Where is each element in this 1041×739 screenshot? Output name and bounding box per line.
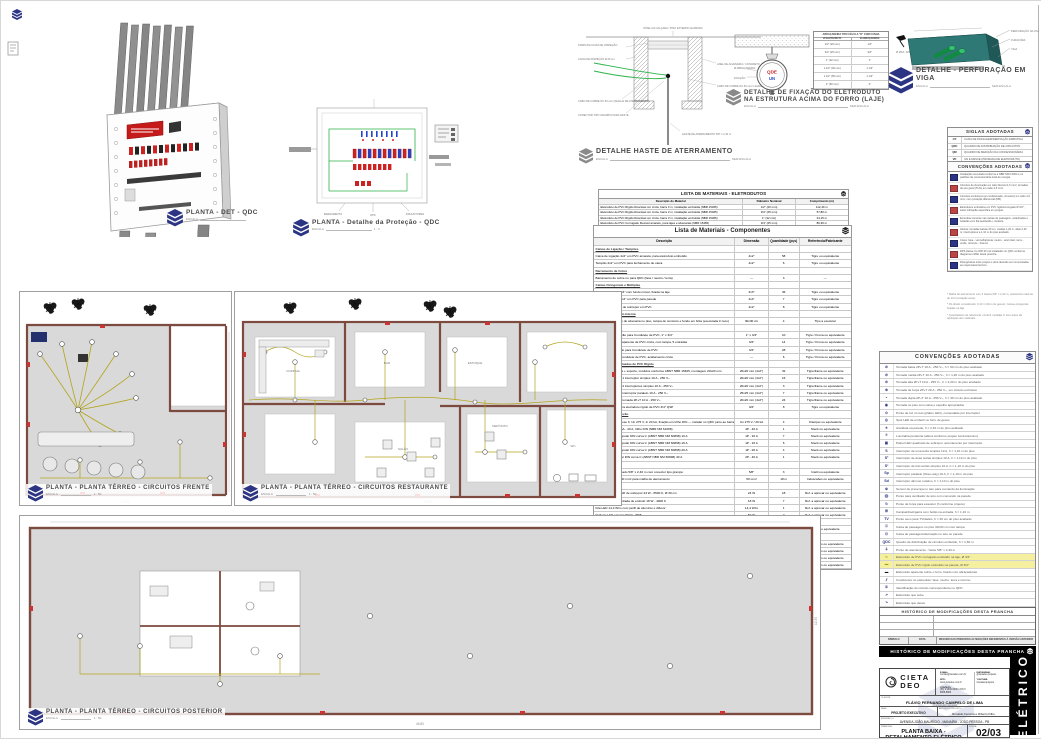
plan-dimension: 46.80 (416, 722, 424, 726)
sheet-corner-mark-icon (7, 41, 19, 57)
scale-label: ESCALA (46, 716, 58, 720)
nota-row: Alturas: tomadas baixas 30 cm, médias 1,… (948, 227, 1032, 238)
fixation-row: 1 1/2" (50 mm) 1 1/2" (814, 73, 888, 81)
field-label: CLIENTE: (881, 697, 891, 699)
contact-value: @cietadeo.projetos (977, 674, 997, 676)
nota-row: Cores: fase - vermelha/preta; neutro - a… (948, 238, 1032, 249)
protecao-annotation: DPS (370, 213, 376, 217)
legend-row: ⊛Sensor de presença no teto para comando… (880, 486, 1035, 494)
sigla-row: CPCAIXA DE PASSAGEM/DERIVAÇÃO EMBUTIDA (948, 137, 1032, 144)
list-row: Barramento de Cobre (594, 268, 851, 275)
legend-row: ↘Eletroduto que desce (880, 599, 1035, 607)
nota-symbol-icon (950, 262, 958, 269)
viga-label: Ø MÁX. D/3 (896, 50, 910, 54)
nota-row: Circuitos exclusivos (ar-condicionado, c… (948, 194, 1032, 205)
sigla-row: QMQUADRO DE MEDIÇÃO DA CONCESSIONÁRIA (948, 150, 1032, 157)
legend-symbol-icon: ▬ (880, 569, 894, 576)
list-row: Interruptores e Tomadas de PVC Rígido (594, 361, 851, 368)
list-header: DescriçãoDimensãoQuantidade (pçs)Referên… (594, 238, 851, 246)
legend-row: ◒Tomada dupla 2P+T 10 A - 250 V~, h = 30… (880, 394, 1035, 402)
list-row: Conjunto 4x2" com 2 interruptores simple… (594, 383, 851, 390)
plan-frente-caption: PLANTA - PLANTA TÉRREO - CIRCUITOS FRENT… (26, 484, 212, 504)
notas-title: CONVENÇÕES ADOTADAS (948, 162, 1032, 172)
list-row: Luminária LED quadrada de embutir 18 W -… (594, 498, 851, 505)
list-row: Caixas de Ligação / Tampões (594, 246, 851, 253)
list-row: Adaptador flangeado para Condulete de PV… (594, 347, 851, 354)
fase-cell: FASE: PROJETO EXECUTIVO (880, 707, 938, 716)
plan-restaurante-panel: COZINHA BAR ESTOQUE SALÃO WC DEPÓSITO 27… (234, 291, 622, 506)
room-label: SALÃO (398, 446, 409, 451)
fase-value: PROJETO EXECUTIVO (880, 711, 937, 715)
siglas-table: SIGLAS ADOTADAS CPCAIXA DE PASSAGEM/DERI… (947, 127, 1033, 164)
endereco-cell: ENDEREÇO: AVENIDA JOÃO MAURÍCIO - MANAÍR… (880, 717, 1009, 724)
sheet-corner-logo-icon (12, 9, 22, 21)
legend-row: ⍉Ponto de força para exaustor (h conform… (880, 501, 1035, 509)
sheet-number: 02/03 (968, 728, 1009, 738)
qdc-3d-drawing (69, 19, 284, 237)
legend-row: ⊘Tomada baixa 2P+T 10 A - 250 V~, h = 30… (880, 364, 1035, 372)
nota-row: Instalação executada conforme a NBR 5410… (948, 172, 1032, 183)
room-label: DEPÓSITO (492, 423, 508, 428)
legend-symbol-icon: TV (880, 516, 894, 523)
legend-symbol-icon: ▬ (880, 561, 894, 568)
fixation-col: Ø ABRAÇADEIRA (852, 38, 889, 40)
nota-row: Circuitos de iluminação em cabo flexível… (948, 183, 1032, 194)
field-label: ENDEREÇO: (881, 718, 894, 720)
client-cell: CLIENTE: FLÁVIO FERNANDO CAMPELO DE LIMA… (880, 696, 1009, 706)
list-row: Condulete múltiplo aparente de PVC cinza… (594, 339, 851, 346)
convencoes-notas: CONVENÇÕES ADOTADAS Instalação executada… (947, 161, 1033, 272)
list-row: Aterramento (594, 462, 851, 469)
list-title: Lista de Materiais - Componentes (594, 226, 851, 238)
nota-symbol-icon (950, 229, 958, 236)
legend-symbol-icon: S (880, 448, 894, 455)
cube-logo-icon (579, 148, 593, 165)
titleblock-bar-title: HISTÓRICO DE MODIFICAÇÕES DESTA PRANCHA (890, 649, 1024, 654)
detail-title: PLANTA - Detalhe da Proteção - QDC (312, 219, 440, 226)
detail-title: DETALHE - PERFURAÇÃO EM VIGA (916, 67, 1039, 83)
prancha-cell: PRANCHA: PLANTA BAIXA - DETALHAMENTO ELÉ… (880, 725, 968, 737)
legend-symbol-icon: Sp (880, 470, 894, 477)
list-row: Caixa de Ligação 4x4" em PVC para parede… (594, 296, 851, 303)
contact-value: www.cietadeo.com.br (940, 682, 962, 684)
contact-value: /cietadeoprojetos (977, 682, 995, 684)
list-row: Iluminação (594, 483, 851, 490)
list-logo-icon (842, 227, 849, 235)
detail-title: PLANTA - DET - QDC (186, 209, 258, 216)
scale-value: 1 : 3 (374, 227, 380, 231)
legend-title: CONVENÇÕES ADOTADAS (880, 352, 1035, 364)
protecao-annotation: DISJUNTORES (406, 212, 425, 216)
historico-empty-row (880, 623, 1035, 630)
cube-logo-icon (167, 209, 183, 228)
material-list-eletrodutos: LISTA DE MATERIAIS - ELETRODUTOS Descriç… (598, 189, 849, 228)
plan-title: PLANTA - PLANTA TÉRREO - CIRCUITOS FRENT… (46, 485, 210, 491)
legend-symbol-icon: ⨂ (880, 493, 894, 500)
legend-row: ⌼Caixa de passagem/derivação no teto ou … (880, 531, 1035, 539)
scale-value: 1 : 50 (94, 492, 102, 496)
drawing-sheet: PLANTA - DET - QDC ESCALA BARRAMENTO DPS… (0, 0, 1041, 739)
legend-symbol-icon: ⌾ (880, 432, 894, 439)
list-row: Mini disjuntor monopolar DIN curva C (AB… (594, 440, 851, 447)
legend-symbol-icon: S³ (880, 463, 894, 470)
haste-label: CABO DE COBRE NU 50 mm² (MALHA DE ATERRA… (578, 99, 650, 103)
client-sub: PROPRIETÁRIO DA OBRA (880, 705, 1009, 707)
legend-row: S³Interruptor de três teclas simples 10 … (880, 463, 1035, 471)
field-label: FASE: (881, 708, 887, 710)
historico-empty-row (880, 630, 1035, 637)
fixation-row: 1" (32 mm) 1" (814, 57, 888, 65)
list-row: Mini disjuntor monopolar DIN curva C (AB… (594, 433, 851, 440)
nota-symbol-icon (950, 207, 958, 214)
cube-logo-icon (293, 219, 309, 238)
scale-label: ESCALA (744, 104, 756, 108)
sigla-row: QDCQUADRO DE DISTRIBUIÇÃO DE CIRCUITOS (948, 144, 1032, 151)
legend-symbol-icon: ✶ (880, 425, 894, 432)
legend-symbol-icon: ◉ (880, 402, 894, 409)
legend-symbol-icon: ↗ (880, 592, 894, 599)
legend-symbol-icon: ⊘ (880, 372, 894, 379)
scale-label: ESCALA (596, 157, 608, 161)
field-label: FOLHA: (969, 726, 977, 728)
badge-logo-icon (1025, 129, 1030, 135)
plan-restaurante-drawing: COZINHA BAR ESTOQUE SALÃO WC DEPÓSITO 27… (235, 292, 621, 505)
list-row: Luva / curva 90° para eletroduto rígido … (594, 404, 851, 411)
nota-symbol-icon (950, 174, 958, 181)
legend-row: ⊘Tomada média 2P+T 10 A - 250 V~, h = 1,… (880, 372, 1035, 380)
historico-empty-row (880, 616, 1035, 623)
viga-label: PERFURAÇÃO NA VIGA (1011, 28, 1039, 33)
folha-cell: FOLHA: 02/03 (968, 725, 1009, 737)
list-row: Condutores (PVC) (594, 325, 851, 332)
list-row: Barramento de cobre nu para QDC (fase / … (594, 275, 851, 282)
scale-value: SEM ESCALA (850, 104, 869, 108)
fixation-row: 1 1/4" (40 mm) 1 1/4" (814, 65, 888, 73)
legend-row: ∿Eletroduto de PVC corrugado embutido na… (880, 554, 1035, 562)
legend-row: ✶Arandela na parede, h = 2,10 m do piso … (880, 425, 1035, 433)
legend-row: ↗Eletroduto que sobe (880, 592, 1035, 600)
list-row: Mini disjuntor monopolar DIN curva C (AB… (594, 447, 851, 454)
list-row: Caixa Octogonal 3x3" com fundo móvel, fi… (594, 289, 851, 296)
qdc-protection-caption: PLANTA - Detalhe da Proteção - QDC ESCAL… (293, 219, 440, 238)
list-row: Tampão 4x2" em PVC para fechamento de ca… (594, 260, 851, 267)
haste-label: HASTE DE ATERRAMENTO 5/8" x 2,40 m (682, 132, 731, 136)
list-row: Caixa de Passagem Interna (594, 311, 851, 318)
fixation-circle-label: QDE (767, 70, 777, 75)
list-row: Caixa Múltipla 4x2" de sobrepor em PVC4x… (594, 304, 851, 311)
legend-row: ▬Eletroduto de PVC rígido embutido na pa… (880, 561, 1035, 569)
legend-row: SInterruptor de uma tecla simples 10 A, … (880, 448, 1035, 456)
fixation-row: 3/4" (25 mm) 3/4" (814, 49, 888, 57)
legend-row: ⊙Ponto de luz no teto (plafon LED), coma… (880, 410, 1035, 418)
fixation-circle-label: UN (769, 76, 775, 81)
discipline-banner-text: ELÉTRICO (1016, 654, 1030, 739)
legend-symbol-icon: ⊘ (880, 364, 894, 371)
obs-line: * Malha de aterramento com 3 hastes 5/8"… (947, 293, 1033, 300)
plan-title: PLANTA - PLANTA TÉRREO - CIRCUITOS RESTA… (261, 485, 448, 491)
sheet-title: PLANTA BAIXA - DETALHAMENTO ELÉTRICO (880, 729, 967, 737)
protecao-annotation: BARRAMENTO (324, 212, 342, 216)
scale-label: ESCALA (186, 217, 198, 221)
siglas-title: SIGLAS ADOTADAS (948, 128, 1032, 137)
legend-row: ▣Painel LED quadrado de sobrepor, aciona… (880, 440, 1035, 448)
list-row: Disjuntores / Proteção (594, 411, 851, 418)
fixation-row: 2" (60 mm) 2" (814, 81, 888, 89)
plan-posterior-caption: PLANTA - PLANTA TÉRREO - CIRCUITOS POSTE… (26, 708, 225, 728)
cube-logo-icon (28, 709, 43, 727)
nota-symbol-icon (950, 185, 958, 192)
legend-symbol-icon: ⊛ (880, 486, 894, 493)
plan-dimension: 12.35 (814, 617, 818, 625)
viga-label: FURAÇÕES (1011, 37, 1026, 42)
plan-restaurante-caption: PLANTA - PLANTA TÉRREO - CIRCUITOS RESTA… (241, 484, 450, 504)
cube-logo-icon (28, 485, 43, 503)
legend-symbol-icon: QDC (880, 539, 894, 546)
fixation-label: Ø ABRAÇADEIRA (734, 66, 755, 70)
list-row: DPS monopolar classe II, Un 275 V, In 20… (594, 419, 851, 426)
list-row: Conjunto 4x2" com tomada 2P+T 10 A - 250… (594, 397, 851, 404)
list-row: Adaptador de redução para Condulete de P… (594, 332, 851, 339)
plan-title: PLANTA - PLANTA TÉRREO - CIRCUITOS POSTE… (46, 709, 223, 715)
legend-symbol-icon: ⊘ (880, 379, 894, 386)
obs-line: * Pé-direito considerado: 3,10 m (forro … (947, 303, 1033, 310)
room-label: COZINHA (286, 369, 300, 373)
autor-cell: AUTOR DO PROJETO: Ronaldo Ferreira e Rib… (938, 707, 1009, 716)
list-row: Conjunto 4x2" placa + suporte, módulos c… (594, 368, 851, 375)
contact-cell: E-MAIL:contato@cietadeo.com.br SITE:www.… (936, 669, 1009, 695)
beam-caption: DETALHE - PERFURAÇÃO EM VIGA ESCALASEM E… (889, 67, 1039, 96)
list-row: Caixas Octogonais e Múltiplas (594, 282, 851, 289)
plan-posterior-drawing: 46.80 12.35 (20, 516, 820, 729)
legend-symbol-icon: ⍉ (880, 501, 894, 508)
legend-symbol-icon: ① (880, 584, 894, 591)
list-row: Conjunto 4x2" com interruptor paralelo 1… (594, 390, 851, 397)
titleblock: CIETADEO E-MAIL:contato@cietadeo.com.br … (879, 668, 1010, 739)
legend-row: ◉Tomada no piso com caixa e espelho apro… (880, 402, 1035, 410)
brand-logo-icon (885, 676, 897, 688)
room-label: ESTOQUE (468, 361, 483, 365)
detail-title: DETALHE DE FIXAÇÃO DO ELETRODUTO (744, 89, 891, 96)
haste-label: CONECTOR TIPO GRAMPO PARA HASTE (578, 113, 629, 117)
legend-row: ⏚Ponto de aterramento - haste 5/8" x 2,4… (880, 546, 1035, 554)
nota-row: Emendas somente nas caixas de passagem, … (948, 216, 1032, 227)
legend-table: CONVENÇÕES ADOTADAS ⊘Tomada baixa 2P+T 1… (879, 351, 1036, 638)
legend-symbol-icon: ⊞ (880, 508, 894, 515)
room-label: WC (571, 444, 577, 448)
legend-symbol-icon: ⊙ (880, 410, 894, 417)
nota-symbol-icon (950, 196, 958, 203)
legend-row: ◎Spot LED de embutir no forro de gesso (880, 417, 1035, 425)
list-row: Mini disjuntor bipolar DIN curva C (ABNT… (594, 454, 851, 461)
historico-table: HISTÓRICO DE MODIFICAÇÕES DESTA PRANCHA … (879, 607, 1036, 645)
list-row: IDR tetrapolar 30 mA - 40 A, trilho DIN … (594, 426, 851, 433)
cube-logo-icon (726, 89, 741, 107)
plan-frente-drawing: 14.25 (20, 292, 231, 505)
legend-symbol-icon: ◒ (880, 394, 894, 401)
scale-value: SEM ESCALA (732, 157, 751, 161)
legend-symbol-icon: S² (880, 455, 894, 462)
scale-label: ESCALA (312, 227, 324, 231)
grounding-caption: DETALHE HASTE DE ATERRAMENTO ESCALASEM E… (579, 148, 789, 165)
badge-logo-icon (1026, 353, 1033, 361)
legend-symbol-icon: ⌻ (880, 523, 894, 530)
nota-row: Eletrodutos embutidos em PVC rígido/corr… (948, 205, 1032, 216)
cube-logo-icon (243, 485, 258, 503)
plan-posterior-panel: 46.80 12.35 PLANTA - PLANTA TÉRREO - CIR… (19, 515, 821, 730)
legend-symbol-icon: ∿ (880, 554, 894, 561)
badge-logo-icon (1025, 163, 1030, 169)
brand-cell: CIETADEO (880, 669, 936, 695)
titleblock-bar: HISTÓRICO DE MODIFICAÇÕES DESTA PRANCHA (879, 646, 1036, 657)
legend-symbol-icon: ◎ (880, 417, 894, 424)
legend-row: S²Interruptor de duas teclas simples 10 … (880, 455, 1035, 463)
legend-symbol-icon: ⏚ (880, 546, 894, 553)
list-row: Tampa cega para Condulete de PVC, acabam… (594, 354, 851, 361)
historico-footer: SÍMBOLO DATA RESUMO DAS PRINCIPAIS ALTER… (880, 637, 1035, 644)
legend-row: ⊘Tomada alta 2P+T 10 A - 250 V~, h = 2,2… (880, 379, 1035, 387)
scale-value: 1 : 50 (309, 492, 317, 496)
list-row: Caixa de passagem de alvenaria no piso, … (594, 318, 851, 325)
legend-row: SpInterruptor paralelo (three-way) 10 A,… (880, 470, 1035, 478)
qdc-3d-caption: PLANTA - DET - QDC ESCALA (167, 209, 258, 228)
list-row: Cabo de cobre nu 50 mm² para malha de at… (594, 476, 851, 483)
fixation-col: Ø ELETRODUTO (814, 38, 852, 40)
historico-title: HISTÓRICO DE MODIFICAÇÕES DESTA PRANCHA (880, 608, 1035, 616)
scale-label: ESCALA (261, 492, 273, 496)
autor-value: Ronaldo Ferreira e Ribeiro Filho (938, 712, 1009, 716)
legend-row: ⊞Campainha/cigarra com botão na entrada,… (880, 508, 1035, 516)
list-row: Haste de aço cobreado 5/8" x 2,40 m com … (594, 469, 851, 476)
legend-row: ①Identificação do circuito correspondent… (880, 584, 1035, 592)
legend-row: QDCQuadro de distribuição de circuitos e… (880, 539, 1035, 547)
nota-row: DPS classe II e IDR 30 mA instalados no … (948, 249, 1032, 260)
scale-value: 1 : 50 (94, 716, 102, 720)
detail-title: DETALHE HASTE DE ATERRAMENTO (596, 148, 789, 156)
brand-name: DEO (900, 682, 929, 690)
legend-symbol-icon: ↘ (880, 599, 894, 606)
legend-row: TVPonto seco para TV/dados, h = 30 cm do… (880, 516, 1035, 524)
nota-row: Divergências entre projeto e obra deverã… (948, 260, 1032, 271)
endereco-value: AVENIDA JOÃO MAURÍCIO - MANAÍRA - JOÃO P… (880, 720, 1009, 724)
field-label: AUTOR DO PROJETO: (939, 708, 962, 710)
fixation-caption: DETALHE DE FIXAÇÃO DO ELETRODUTO NA ESTR… (726, 89, 891, 108)
legend-row: ⌾Luminária pendente (altura conforme pro… (880, 432, 1035, 440)
viga-label: VIGA (1011, 47, 1017, 51)
legend-row: ⫽Condutores no eletroduto: fase, neutro,… (880, 577, 1035, 585)
list-logo-icon (841, 191, 846, 197)
nota-symbol-icon (950, 218, 958, 225)
legend-row: ⌻Caixa de passagem no piso 30x30 cm com … (880, 523, 1035, 531)
legend-symbol-icon: Sd (880, 478, 894, 485)
legend-row: ▬Eletroduto aparente sobre o forro, fixa… (880, 569, 1035, 577)
discipline-banner: ELÉTRICO (1010, 657, 1036, 735)
contact-value: (83) 9 9999-9999 / (83) 9 8888-8888 (940, 689, 966, 694)
room-label: BAR (384, 361, 391, 365)
list-row: Fita LED 14,4 W/m com perfil de alumínio… (594, 505, 851, 512)
haste-label: TAMPA DA CAIXA DE INSPEÇÃO (578, 42, 617, 47)
legend-symbol-icon: ⌼ (880, 531, 894, 538)
haste-label: NÍVEL DA CALÇADA / PISO EXTERNO ACABADO (643, 26, 702, 30)
legend-symbol-icon: ▣ (880, 440, 894, 447)
obs-line: * Quantitativos de referência: conferir … (947, 314, 1033, 321)
scale-label: ESCALA (46, 492, 58, 496)
legend-row: ⊕Tomada de força 2P+T 20 A - 250 V~, em … (880, 387, 1035, 395)
list-row: Caixa de Ligação 4x2" em PVC amarela, pa… (594, 253, 851, 260)
list-row: Luminária plafon LED de sobrepor 24 W - … (594, 490, 851, 497)
sheet-right-border (1038, 5, 1039, 734)
field-label: PRANCHA: (881, 726, 892, 728)
legend-row: SdInterruptor dimmer rotativo, h = 1,10 … (880, 478, 1035, 486)
legend-symbol-icon: ⫽ (880, 577, 894, 584)
nota-symbol-icon (950, 251, 958, 258)
observacoes: * Malha de aterramento com 3 hastes 5/8"… (947, 293, 1033, 324)
list-row: Conjunto 4x2" com 1 interruptor simples … (594, 375, 851, 382)
contact-value: contato@cietadeo.com.br (940, 674, 966, 676)
scale-value: SEM ESCALA (992, 84, 1011, 88)
scale-label: ESCALA (916, 84, 928, 88)
detail-title: NA ESTRUTURA ACIMA DO FORRO (LAJE) (744, 96, 891, 103)
legend-row: ⨂Ponto para ventilador de teto com coman… (880, 493, 1035, 501)
fixation-label: FIXAÇÃO (734, 75, 745, 80)
fixation-table: ABRAÇADEIRA TIPO CÉLULA "D" COM CUNHA Ø … (813, 31, 889, 90)
legend-symbol-icon: ⊕ (880, 387, 894, 394)
qdc-protection-drawing: BARRAMENTO DPS DISJUNTORES (289, 99, 459, 217)
plan-frente-panel: 14.25 PLANTA - PLANTA TÉRREO - CIRCUITOS… (19, 291, 232, 506)
list-title: LISTA DE MATERIAIS - ELETRODUTOS (599, 190, 848, 199)
fixation-row: 1/2" (20 mm) 1/2" (814, 41, 888, 49)
haste-label: CAIXA DE INSPEÇÃO Ø 25 cm (578, 56, 615, 61)
nota-symbol-icon (950, 240, 958, 247)
cube-logo-icon (889, 67, 913, 96)
